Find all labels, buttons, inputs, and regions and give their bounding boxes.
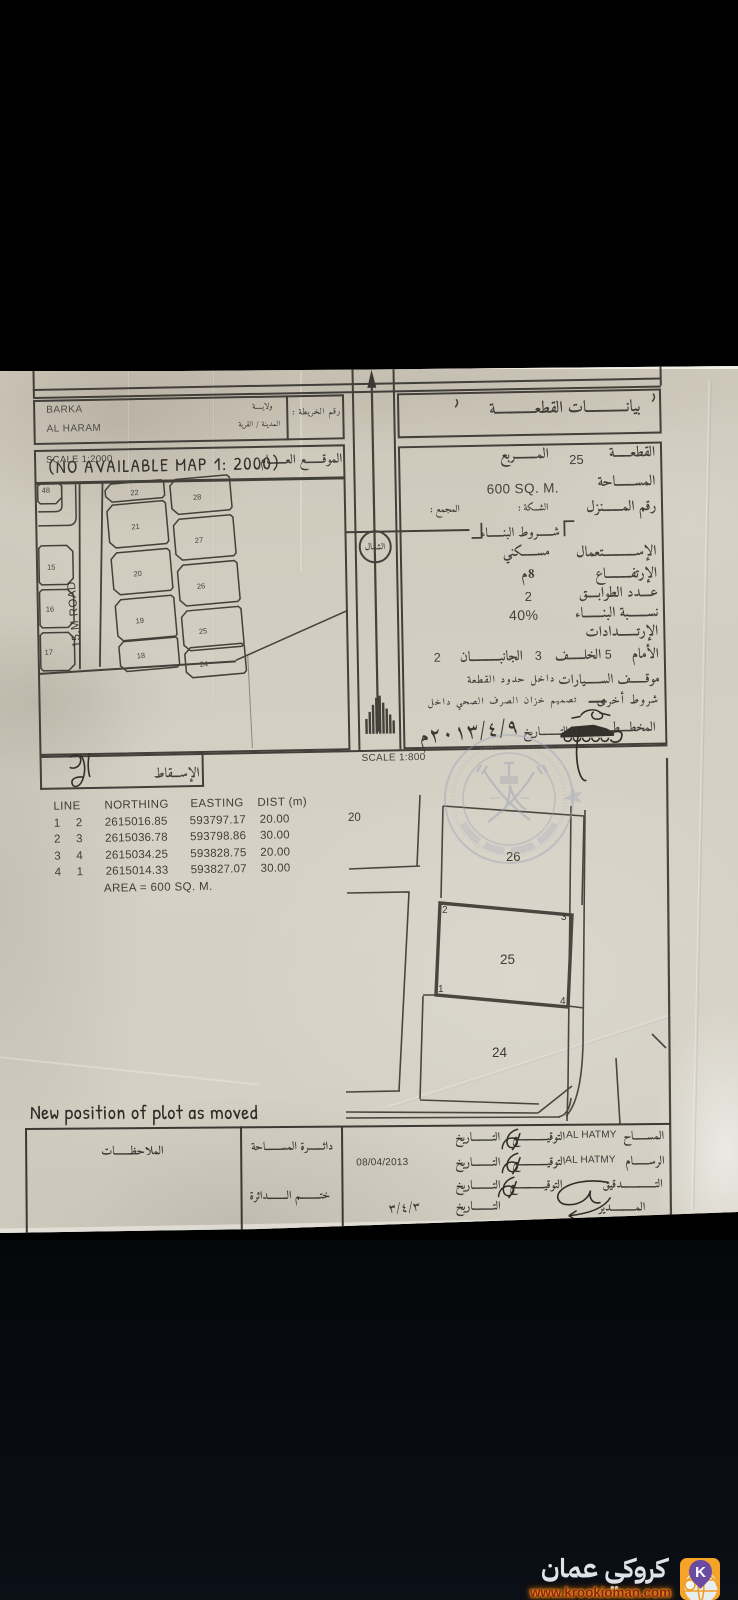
- svg-text:K: K: [695, 1564, 706, 1581]
